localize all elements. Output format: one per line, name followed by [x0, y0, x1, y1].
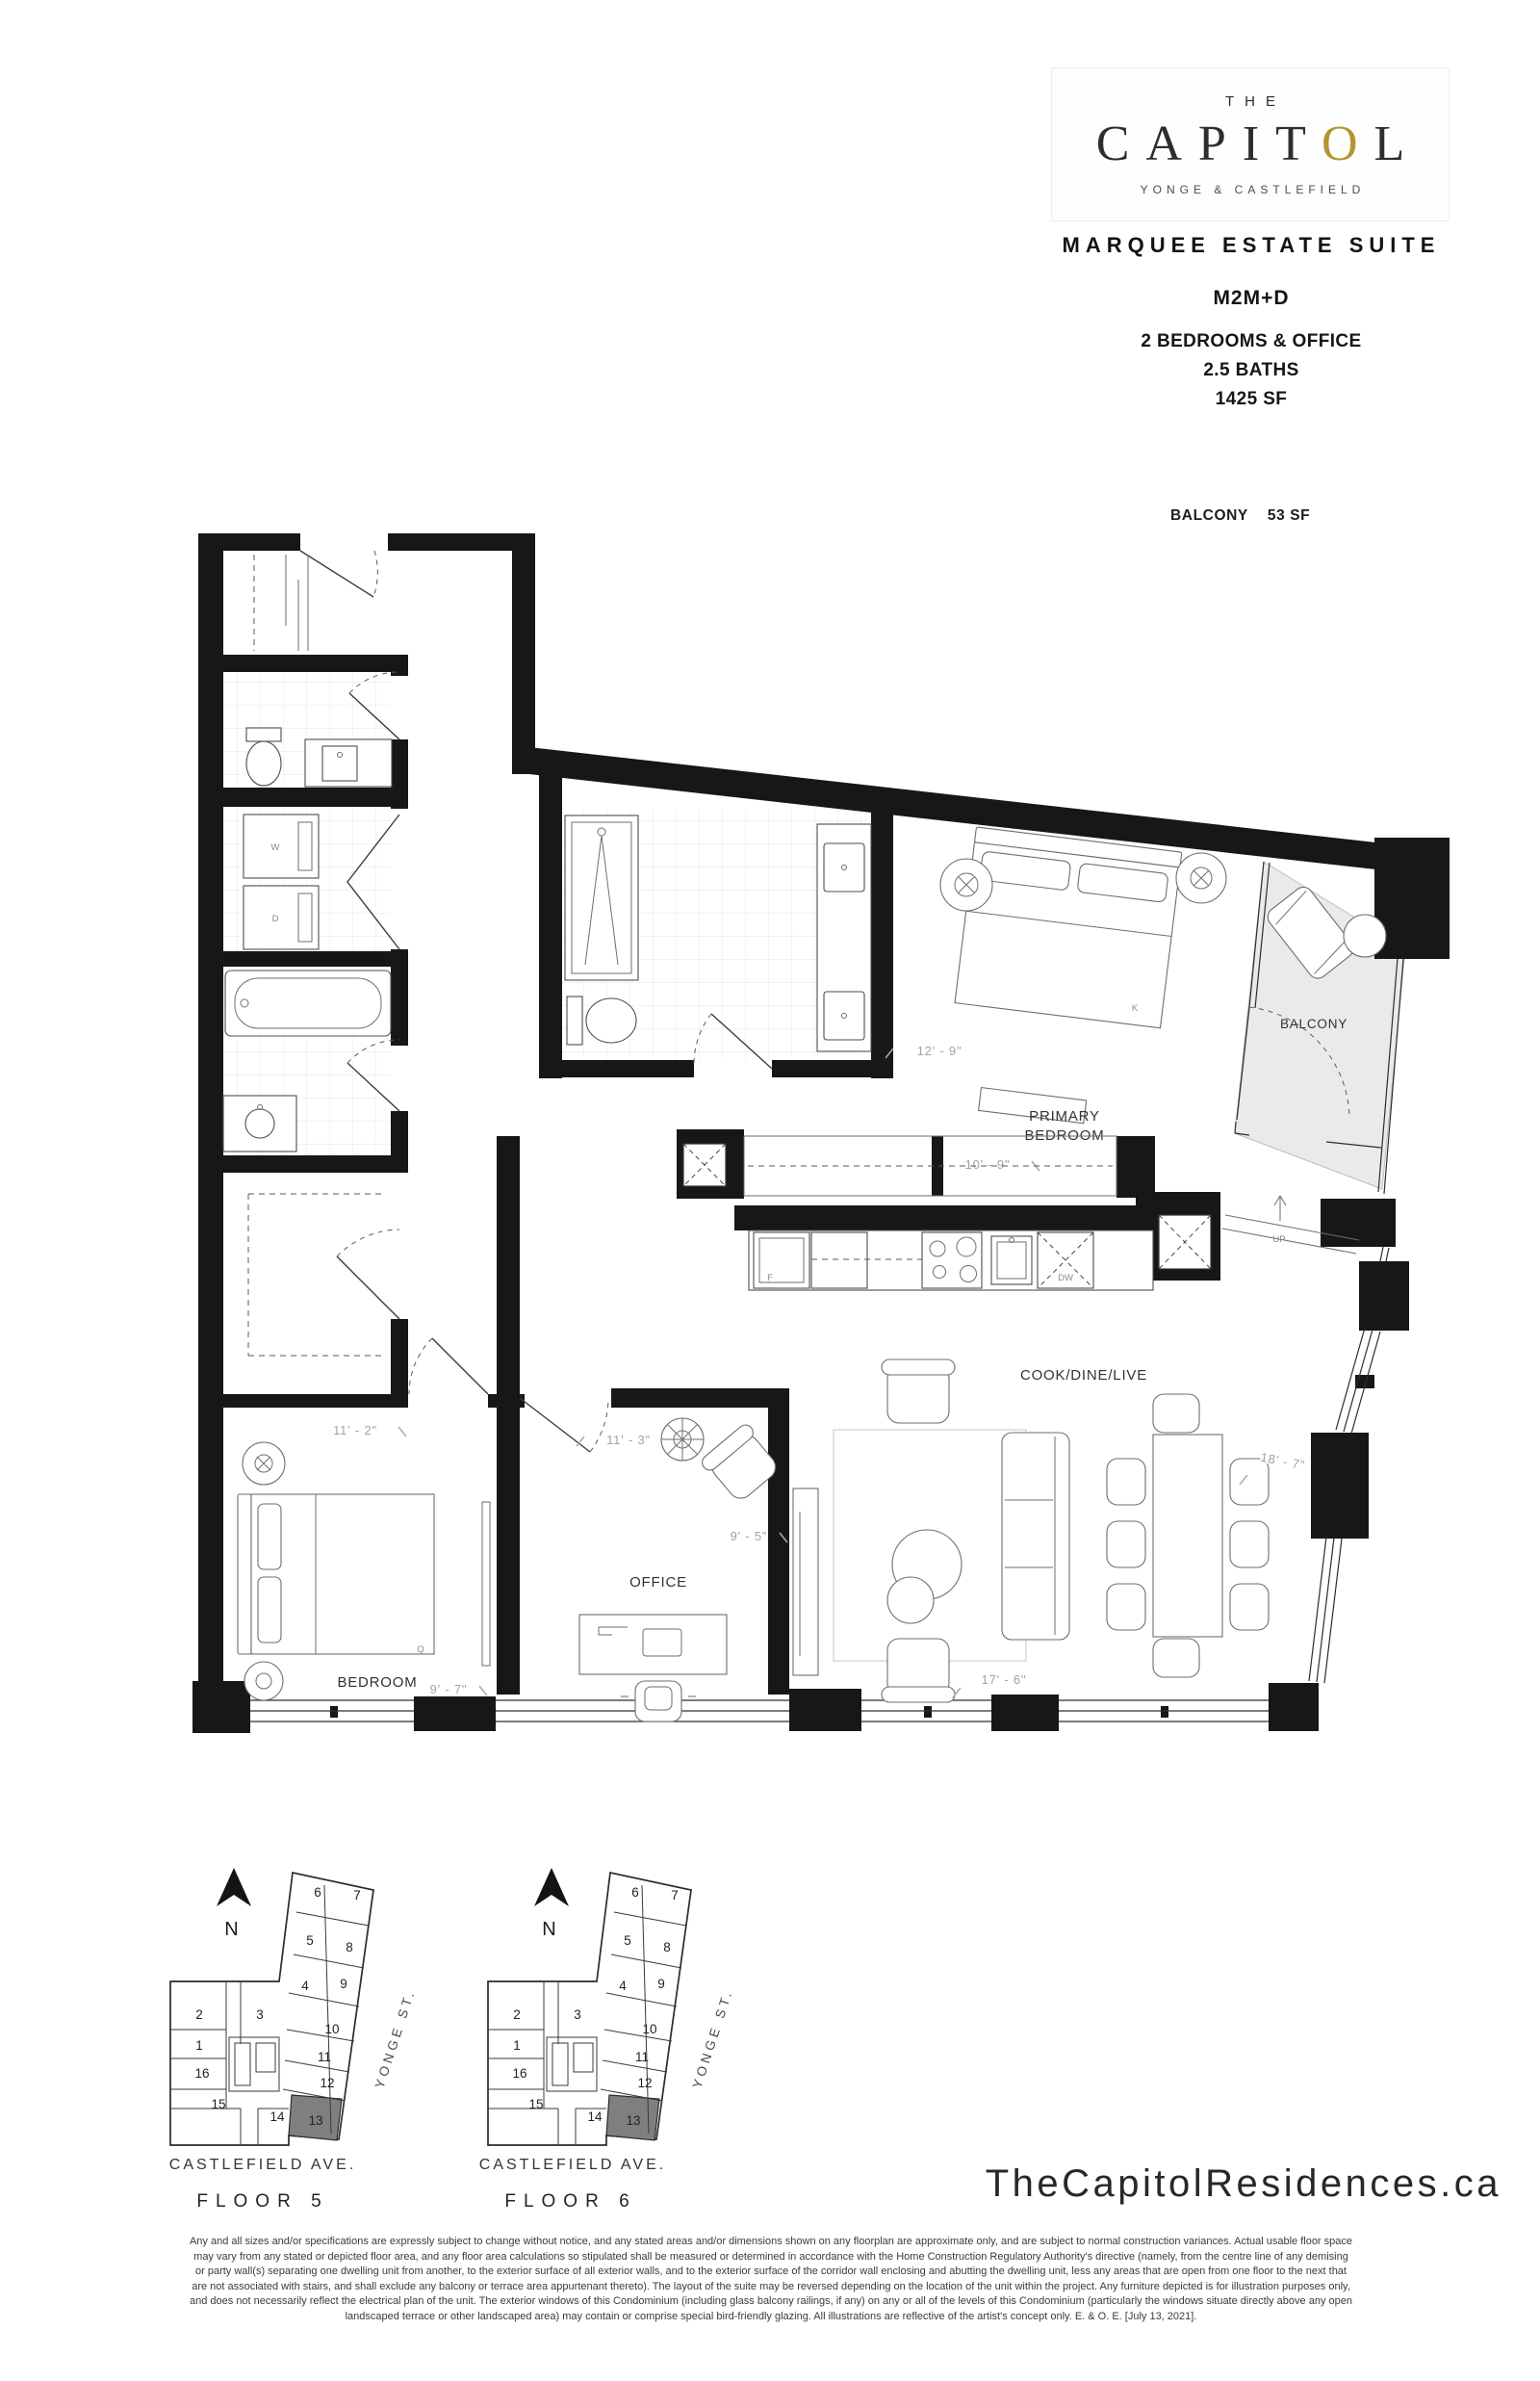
- logo-capitol: CAPITOL: [1080, 119, 1422, 169]
- keyplan-unit-2: 2: [513, 2007, 521, 2022]
- logo-the: THE: [1215, 93, 1286, 110]
- fridge-label: F: [767, 1273, 773, 1283]
- dryer-label: D: [272, 914, 279, 924]
- castlefield-label-floor6: CASTLEFIELD AVE.: [428, 2157, 717, 2174]
- model-code: M2M+D: [1001, 287, 1501, 310]
- keyplan-unit-16: 16: [194, 2066, 209, 2081]
- keyplan-unit-7: 7: [671, 1888, 679, 1902]
- primary-bedroom-label-1: PRIMARY: [1029, 1108, 1100, 1125]
- office: OFFICE 11' - 3" 9' - 5": [577, 1418, 787, 1721]
- spec-bedrooms: 2 BEDROOMS & OFFICE: [1001, 327, 1501, 356]
- keyplan-unit-10: 10: [642, 2022, 656, 2036]
- keyplan-unit-2: 2: [195, 2007, 203, 2022]
- keyplan-unit-9: 9: [657, 1977, 665, 1991]
- logo: THE CAPITOL YONGE & CASTLEFIELD: [1051, 67, 1450, 221]
- floor-plan-svg: W D: [191, 520, 1451, 1743]
- floor-plan: W D: [191, 520, 1451, 1743]
- yonge-street-label: YONGE ST.: [690, 1987, 736, 2090]
- keyplan-floor-6: N YONGE ST. 12345678910111213141516: [452, 1847, 751, 2150]
- keyplan-unit-14: 14: [269, 2109, 285, 2124]
- disclaimer-line: may vary from any stated or depicted flo…: [43, 2250, 1499, 2265]
- keyplan-unit-11: 11: [635, 2050, 649, 2064]
- second-bedroom: Q BEDROOM 11' - 2" 9' - 7": [238, 1423, 490, 1700]
- balcony-label: BALCONY: [1280, 1017, 1347, 1031]
- keyplan-unit-5: 5: [624, 1933, 631, 1948]
- disclaimer-line: Any and all sizes and/or specifications …: [43, 2235, 1499, 2250]
- keyplan-unit-13: 13: [308, 2113, 322, 2128]
- keyplan-unit-6: 6: [631, 1885, 639, 1900]
- washer-label: W: [271, 842, 280, 853]
- office-label: OFFICE: [629, 1574, 687, 1591]
- bedroom-width-dim: 11' - 2": [333, 1423, 377, 1437]
- yonge-street-label: YONGE ST.: [372, 1987, 419, 2090]
- keyplan-unit-6: 6: [314, 1885, 321, 1900]
- primary-closet-band: [744, 1136, 1116, 1196]
- north-label: N: [542, 1919, 556, 1940]
- up-label: UP: [1272, 1234, 1285, 1245]
- keyplan-unit-4: 4: [301, 1979, 309, 1993]
- office-width-dim: 11' - 3": [606, 1433, 651, 1447]
- disclaimer-line: and does not necessarily reflect the ele…: [43, 2294, 1499, 2310]
- spec-area: 1425 SF: [1001, 385, 1501, 414]
- keyplan-unit-10: 10: [324, 2022, 339, 2036]
- cook-dine-live-label: COOK/DINE/LIVE: [1020, 1367, 1147, 1384]
- disclaimer-line: landscaped terrace or other landscaped a…: [43, 2310, 1499, 2325]
- keyplan-unit-15: 15: [528, 2097, 543, 2111]
- keyplan-unit-13: 13: [626, 2113, 640, 2128]
- logo-capitol-post: L: [1374, 116, 1422, 171]
- logo-capitol-pre: CAPIT: [1096, 116, 1322, 171]
- primary-bedroom: K PRIMARY BEDROOM 12' - 9" 10' - 9": [885, 827, 1226, 1172]
- spec-baths: 2.5 BATHS: [1001, 356, 1501, 385]
- suite-title: MARQUEE ESTATE SUITE: [1001, 233, 1501, 258]
- keyplan-unit-3: 3: [574, 2007, 581, 2022]
- floor6-caption: FLOOR 6: [426, 2191, 715, 2213]
- logo-tagline: YONGE & CASTLEFIELD: [1136, 183, 1366, 196]
- bedroom-depth-dim: 9' - 7": [430, 1682, 468, 1696]
- keyplan-unit-16: 16: [512, 2066, 526, 2081]
- entry-closet: [254, 555, 308, 651]
- keyplan-unit-11: 11: [318, 2050, 331, 2064]
- keyplan-unit-5: 5: [306, 1933, 314, 1948]
- keyplan-unit-14: 14: [587, 2109, 603, 2124]
- keyplan-floor-5: N YONGE ST. 12345678910111213141516: [135, 1847, 433, 2150]
- primary-width-dim: 12' - 9": [917, 1044, 962, 1058]
- living-dining: COOK/DINE/LIVE 17' - 6" 18' - 7": [793, 1359, 1306, 1702]
- floorplan-brochure-page: THE CAPITOL YONGE & CASTLEFIELD MARQUEE …: [0, 0, 1540, 2381]
- office-depth-dim: 9' - 5": [731, 1529, 768, 1543]
- disclaimer-line: are not associated with stairs, and shal…: [43, 2280, 1499, 2295]
- king-bed-label: K: [1132, 1003, 1139, 1014]
- keyplan-unit-8: 8: [663, 1940, 671, 1954]
- keyplan-unit-12: 12: [320, 2076, 334, 2090]
- keyplan-unit-3: 3: [256, 2007, 264, 2022]
- suite-specs: 2 BEDROOMS & OFFICE 2.5 BATHS 1425 SF: [1001, 327, 1501, 414]
- disclaimer-line: or party wall(s) separating one dwelling…: [43, 2265, 1499, 2280]
- kitchen: F DW: [749, 1230, 1153, 1290]
- keyplan-unit-8: 8: [346, 1940, 353, 1954]
- castlefield-label-floor5: CASTLEFIELD AVE.: [118, 2157, 407, 2174]
- living-width-dim: 17' - 6": [982, 1672, 1027, 1687]
- disclaimer-text: Any and all sizes and/or specifications …: [43, 2235, 1499, 2325]
- website-url: TheCapitolResidences.ca: [731, 2162, 1501, 2206]
- north-label: N: [224, 1919, 239, 1940]
- keyplan-unit-12: 12: [637, 2076, 652, 2090]
- queen-bed-label: Q: [417, 1644, 423, 1655]
- walk-in-closet: [248, 1194, 383, 1356]
- keyplan-unit-15: 15: [211, 2097, 225, 2111]
- keyplan-unit-7: 7: [353, 1888, 361, 1902]
- dishwasher-label: DW: [1058, 1273, 1073, 1283]
- keyplan-unit-9: 9: [340, 1977, 347, 1991]
- floor5-caption: FLOOR 5: [118, 2191, 407, 2213]
- keyplan-unit-1: 1: [195, 2038, 203, 2053]
- logo-gold-o: O: [1322, 116, 1374, 171]
- bedroom-label: BEDROOM: [337, 1674, 417, 1691]
- keyplan-unit-1: 1: [513, 2038, 521, 2053]
- primary-depth-dim: 10' - 9": [965, 1157, 1011, 1172]
- keyplan-unit-4: 4: [619, 1979, 627, 1993]
